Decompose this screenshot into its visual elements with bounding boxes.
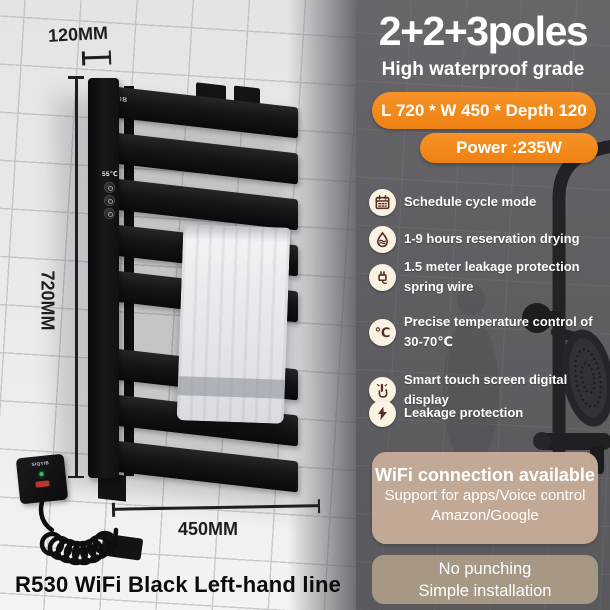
feature-row: 1.5 meter leakage protection spring wire xyxy=(369,257,580,297)
installation-callout-box: No punching Simple installation xyxy=(372,555,598,604)
temperature-display: 55℃ xyxy=(102,170,122,178)
panel-subtitle: High waterproof grade xyxy=(356,59,610,81)
wifi-box-title: WiFi connection available xyxy=(372,465,598,486)
rack-column xyxy=(88,78,119,478)
dimension-line-height xyxy=(75,76,78,478)
wall-corner-shadow xyxy=(288,0,360,610)
power-button xyxy=(104,182,115,193)
timer-button xyxy=(104,195,115,206)
towel-fold xyxy=(183,224,290,243)
feature-text: Schedule cycle mode xyxy=(404,192,536,212)
install-box-line2: Simple installation xyxy=(372,580,598,602)
heat-mode-button xyxy=(104,208,115,219)
power-badge: Power :235W xyxy=(420,133,598,163)
temperature-icon: ℃ xyxy=(369,319,396,346)
product-infographic: 120MM 720MM 450MM SIQYIB 55℃ SIQYIB xyxy=(0,0,610,610)
feature-row: 1-9 hours reservation drying xyxy=(369,226,580,253)
info-panel: 2+2+3poles High waterproof grade L 720 *… xyxy=(356,0,610,610)
calendar-icon xyxy=(369,189,396,216)
outlet-brand-label: SIQYIB xyxy=(16,459,64,469)
dimension-label-height: 720MM xyxy=(37,261,58,341)
dimension-label-width-bottom: 450MM xyxy=(168,519,248,540)
water-drop-icon xyxy=(369,226,396,253)
panel-title: 2+2+3poles xyxy=(356,8,610,55)
feature-text: 1.5 meter leakage protection spring wire xyxy=(404,257,580,297)
wifi-box-line2: Amazon/Google xyxy=(372,506,598,526)
leakage-protector-outlet: SIQYIB xyxy=(16,454,69,505)
towel-stripe xyxy=(177,376,285,399)
wifi-callout-box: WiFi connection available Support for ap… xyxy=(372,452,598,544)
lightning-icon xyxy=(369,400,396,427)
size-badge: L 720 * W 450 * Depth 120 xyxy=(372,92,596,129)
plug-icon xyxy=(369,264,396,291)
feature-row: Leakage protection xyxy=(369,400,523,427)
feature-row: Schedule cycle mode xyxy=(369,189,536,216)
install-box-line1: No punching xyxy=(372,558,598,580)
outlet-test-button xyxy=(35,480,50,487)
feature-text: 1-9 hours reservation drying xyxy=(404,229,580,249)
hanging-towel xyxy=(177,224,291,424)
feature-text: Precise temperature control of 30-70℃ xyxy=(404,312,593,352)
wifi-box-line1: Support for apps/Voice control xyxy=(372,486,598,506)
feature-row: ℃ Precise temperature control of 30-70℃ xyxy=(369,312,593,352)
dimension-label-width-top: 120MM xyxy=(47,22,118,47)
feature-text: Leakage protection xyxy=(404,403,523,423)
outlet-led-indicator xyxy=(39,472,43,476)
control-panel: 55℃ xyxy=(98,168,122,224)
